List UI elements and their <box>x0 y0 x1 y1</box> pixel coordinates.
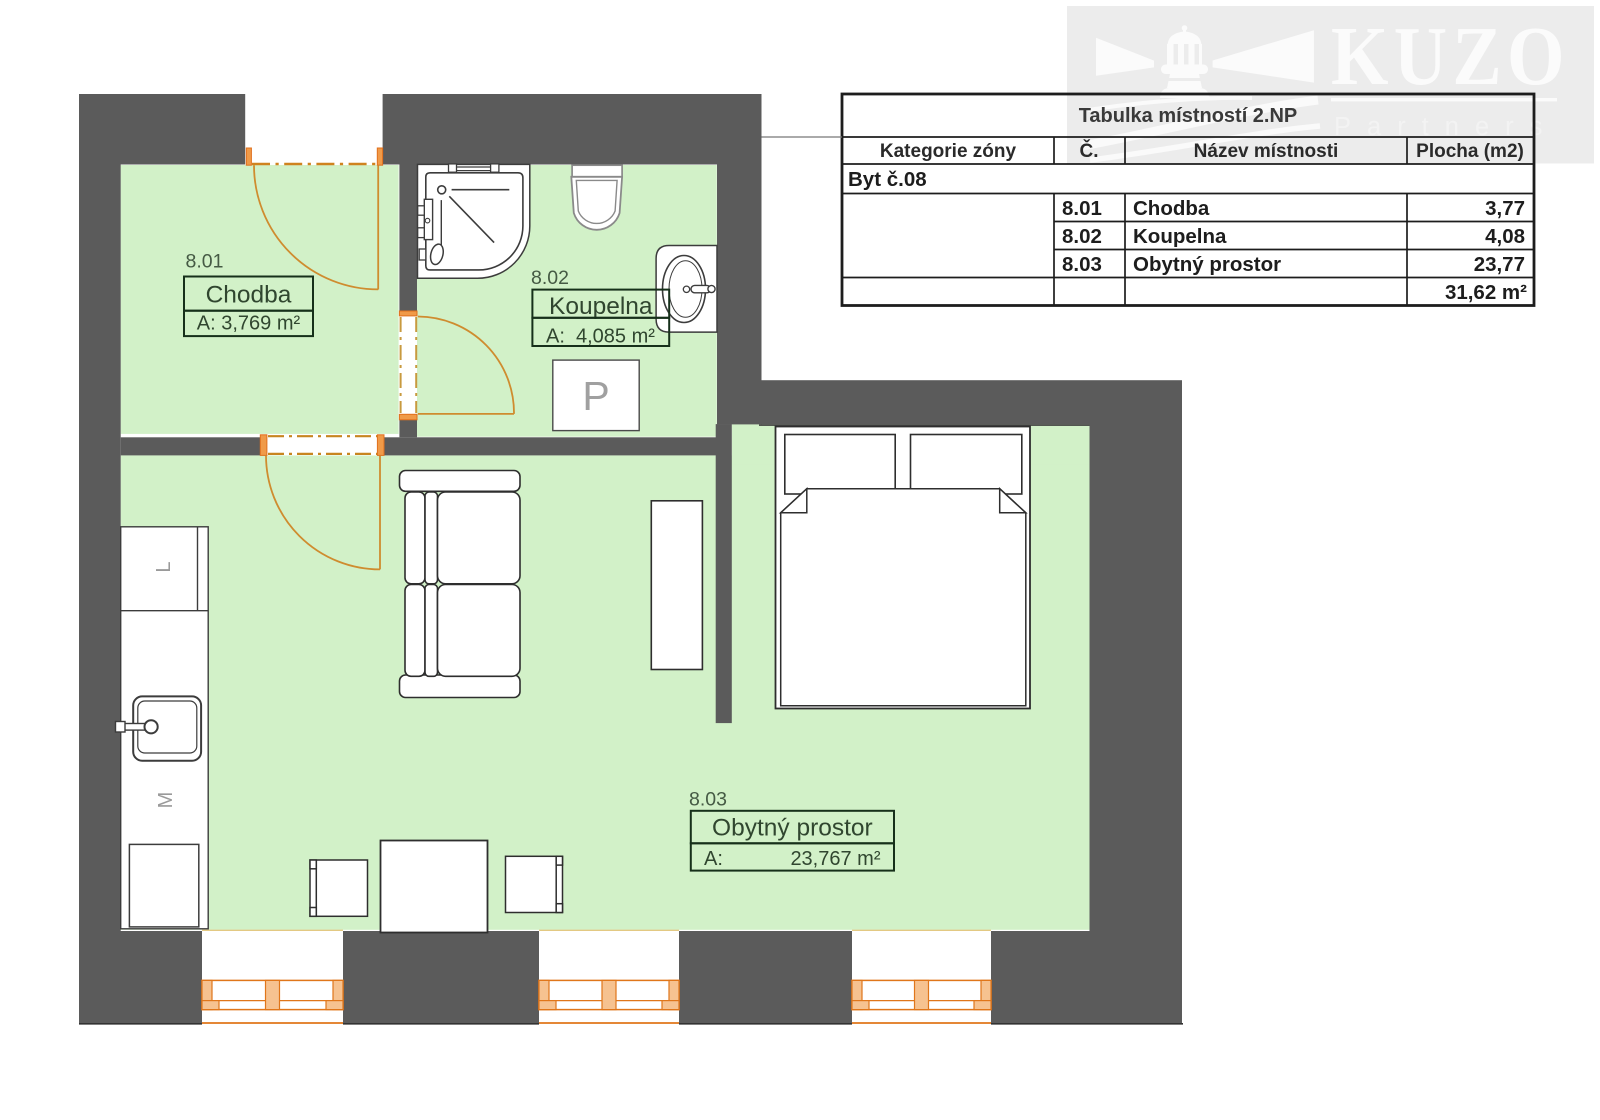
svg-text:KUZO: KUZO <box>1331 10 1570 103</box>
svg-text:Obytný prostor: Obytný prostor <box>712 815 873 842</box>
svg-text:Koupelna: Koupelna <box>1133 225 1227 248</box>
svg-text:Č.: Č. <box>1080 140 1099 162</box>
svg-text:Chodba: Chodba <box>206 282 292 309</box>
svg-text:Název místnosti: Název místnosti <box>1194 141 1339 162</box>
svg-text:M: M <box>155 792 177 809</box>
svg-text:A: 3,769 m²: A: 3,769 m² <box>197 313 301 335</box>
svg-text:8.03: 8.03 <box>1062 253 1102 276</box>
svg-text:3,77: 3,77 <box>1485 197 1525 220</box>
svg-text:8.02: 8.02 <box>1062 225 1102 248</box>
svg-text:P: P <box>582 373 609 419</box>
svg-text:Plocha (m2): Plocha (m2) <box>1416 141 1524 162</box>
svg-text:23,77: 23,77 <box>1474 253 1525 276</box>
svg-text:A:: A: <box>704 848 723 870</box>
svg-text:Chodba: Chodba <box>1133 197 1210 220</box>
svg-text:8.01: 8.01 <box>1062 197 1102 220</box>
svg-text:Byt č.08: Byt č.08 <box>848 168 927 191</box>
svg-text:8.03: 8.03 <box>689 789 727 811</box>
svg-text:4,08: 4,08 <box>1485 225 1525 248</box>
svg-text:4,085 m²: 4,085 m² <box>576 326 655 348</box>
svg-text:Tabulka místností 2.NP: Tabulka místností 2.NP <box>1079 105 1298 127</box>
svg-text:Obytný prostor: Obytný prostor <box>1133 253 1281 276</box>
svg-text:Koupelna: Koupelna <box>549 293 653 320</box>
svg-text:L: L <box>153 561 175 572</box>
svg-text:8.02: 8.02 <box>531 267 569 289</box>
svg-text:Kategorie zóny: Kategorie zóny <box>880 141 1017 162</box>
svg-text:31,62 m²: 31,62 m² <box>1445 281 1527 304</box>
svg-text:A:: A: <box>546 326 565 348</box>
svg-text:8.01: 8.01 <box>186 251 224 273</box>
svg-text:23,767 m²: 23,767 m² <box>790 848 880 870</box>
